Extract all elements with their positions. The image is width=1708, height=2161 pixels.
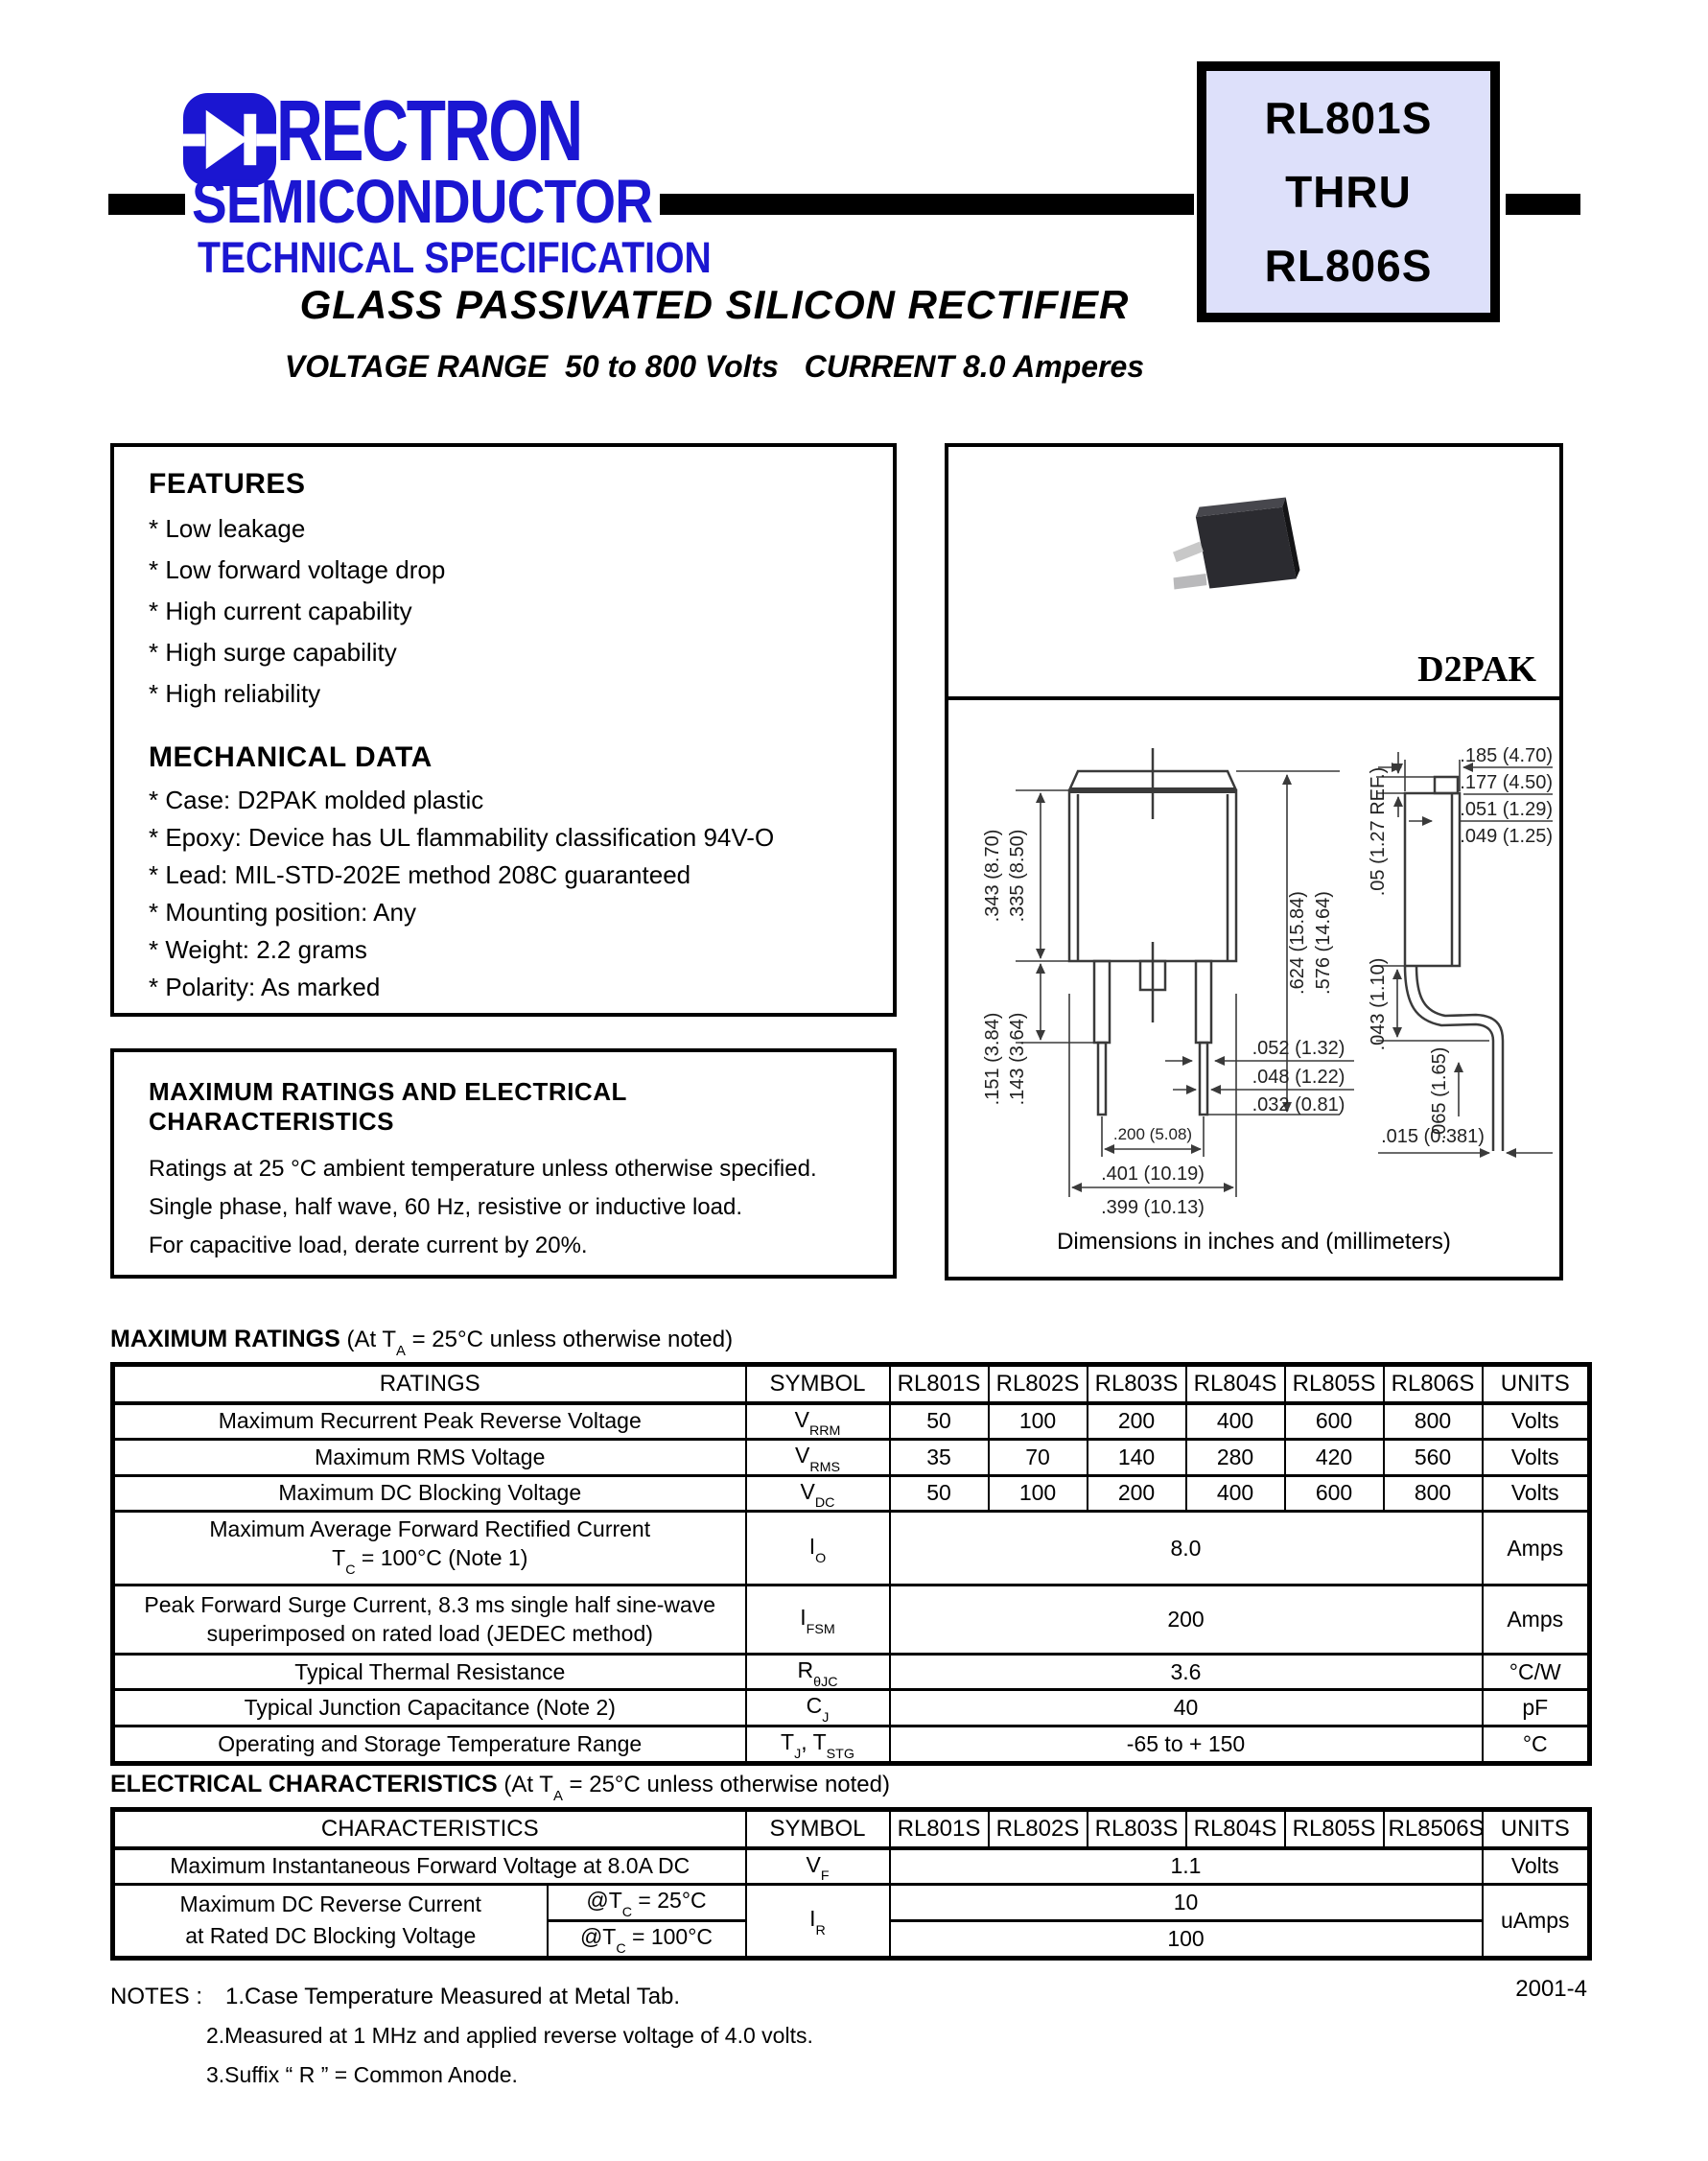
characteristic-symbol: IR [746,1885,890,1959]
rating-value: 100 [989,1403,1088,1440]
rating-value: 3.6 [890,1654,1483,1690]
column-header: RL803S [1088,1810,1186,1848]
dimension-drawing: .343 (8.70) .335 (8.50) .151 (3.84) .143… [956,702,1556,1220]
d2pak-photo [1148,478,1340,641]
characteristic-unit: uAmps [1483,1885,1590,1959]
dim-label: .151 (3.84) [982,1013,1003,1106]
mechanical-item: * Weight: 2.2 grams [149,931,876,969]
rating-value: 8.0 [890,1512,1483,1586]
mechanical-item: * Case: D2PAK molded plastic [149,782,876,819]
feature-item: * Low leakage [149,508,876,550]
column-header: RL802S [989,1365,1088,1403]
rating-unit: Volts [1483,1475,1590,1512]
characteristic-unit: Volts [1483,1848,1590,1885]
rating-value: 280 [1186,1440,1285,1476]
part-number-last: RL806S [1265,240,1433,292]
rating-value: 600 [1285,1403,1384,1440]
notes-section: NOTES :1.Case Temperature Measured at Me… [110,1978,813,2095]
electrical-label: ELECTRICAL CHARACTERISTICS (At TA = 25°C… [110,1771,890,1801]
table-row: Typical Junction Capacitance (Note 2) CJ… [113,1690,1590,1726]
note-item: 3.Suffix “ R ” = Common Anode. [206,2055,813,2095]
electrical-label-sub: A [553,1789,563,1804]
electrical-table: CHARACTERISTICS SYMBOL RL801S RL802S RL8… [110,1807,1592,1961]
rating-symbol: VDC [746,1475,890,1512]
rating-value: 50 [890,1475,989,1512]
rating-symbol: RθJC [746,1654,890,1690]
column-header: RL8506S [1384,1810,1483,1848]
divider-bar-right [1506,194,1580,215]
max-ratings-label-sub: A [396,1344,406,1359]
mechanical-item: * Epoxy: Device has UL flammability clas… [149,819,876,857]
dim-label: .049 (1.25) [1460,826,1553,847]
rating-value: 200 [1088,1475,1186,1512]
rating-value: 200 [890,1585,1483,1654]
rating-value: 100 [989,1475,1088,1512]
column-header: UNITS [1483,1365,1590,1403]
column-header: RL805S [1285,1810,1384,1848]
characteristic-name: Maximum Instantaneous Forward Voltage at… [113,1848,746,1885]
rating-value: 70 [989,1440,1088,1476]
characteristic-symbol: VF [746,1848,890,1885]
dim-label: .051 (1.29) [1460,799,1553,820]
rating-value: 600 [1285,1475,1384,1512]
dim-label: .052 (1.32) [1252,1038,1345,1059]
rating-value: 420 [1285,1440,1384,1476]
column-header: RL804S [1186,1365,1285,1403]
dim-label: .335 (8.50) [1007,830,1028,923]
max-ratings-label: MAXIMUM RATINGS (At TA = 25°C unless oth… [110,1326,733,1356]
rating-value: 35 [890,1440,989,1476]
ratings-condition-line: Single phase, half wave, 60 Hz, resistiv… [149,1188,876,1227]
test-condition: @TC = 25°C [548,1885,746,1921]
part-number-thru: THRU [1285,166,1412,218]
rating-name: Peak Forward Surge Current, 8.3 ms singl… [113,1585,746,1654]
characteristic-name: Maximum DC Reverse Current at Rated DC B… [113,1885,548,1959]
characteristic-value: 1.1 [890,1848,1483,1885]
dim-label: .624 (15.84) [1287,891,1308,995]
electrical-label-pre: (At T [503,1772,553,1797]
rating-name: Maximum Recurrent Peak Reverse Voltage [113,1403,746,1440]
rating-name: Maximum DC Blocking Voltage [113,1475,746,1512]
dim-label: .399 (10.13) [1101,1197,1205,1218]
features-box: FEATURES * Low leakage * Low forward vol… [110,443,897,1017]
column-header: RL801S [890,1810,989,1848]
rating-symbol: TJ, TSTG [746,1726,890,1764]
mechanical-item: * Polarity: As marked [149,969,876,1006]
column-header: CHARACTERISTICS [113,1810,746,1848]
rating-unit: °C [1483,1726,1590,1764]
table-row: Operating and Storage Temperature Range … [113,1726,1590,1764]
max-ratings-label-pre: (At T [346,1327,396,1352]
characteristic-value: 100 [890,1921,1483,1959]
feature-item: * Low forward voltage drop [149,550,876,591]
electrical-label-post: = 25°C unless otherwise noted) [563,1772,890,1797]
dim-label: .177 (4.50) [1460,772,1553,793]
rating-symbol: IFSM [746,1585,890,1654]
rating-unit: Volts [1483,1440,1590,1476]
max-ratings-table: RATINGS SYMBOL RL801S RL802S RL803S RL80… [110,1362,1592,1766]
package-box: D2PAK [945,443,1563,1280]
rating-name: Typical Junction Capacitance (Note 2) [113,1690,746,1726]
note-item: 2.Measured at 1 MHz and applied reverse … [206,2016,813,2055]
dimension-caption: Dimensions in inches and (millimeters) [948,1229,1559,1256]
rating-symbol: VRMS [746,1440,890,1476]
brand-line3: TECHNICAL SPECIFICATION [198,236,712,279]
column-header: RL805S [1285,1365,1384,1403]
rating-unit: °C/W [1483,1654,1590,1690]
divider-bar-left [108,194,185,215]
part-number-first: RL801S [1265,92,1433,144]
rating-value: 800 [1384,1475,1483,1512]
table-row: Maximum Average Forward Rectified Curren… [113,1512,1590,1586]
rating-symbol: VRRM [746,1403,890,1440]
dim-label: .143 (3.64) [1007,1013,1028,1106]
ratings-conditions-box: MAXIMUM RATINGS AND ELECTRICAL CHARACTER… [110,1048,897,1279]
ratings-condition-line: Ratings at 25 °C ambient temperature unl… [149,1150,876,1188]
characteristic-value: 10 [890,1885,1483,1921]
rating-unit: Amps [1483,1585,1590,1654]
rating-unit: Volts [1483,1403,1590,1440]
note-item: 1.Case Temperature Measured at Metal Tab… [225,1984,680,2009]
dim-label: .015 (0.381) [1381,1126,1485,1147]
table-header-row: CHARACTERISTICS SYMBOL RL801S RL802S RL8… [113,1810,1590,1848]
column-header: UNITS [1483,1810,1590,1848]
page-subtitle: VOLTAGE RANGE 50 to 800 Volts CURRENT 8.… [158,349,1271,385]
brand-name: RECTRON [276,88,581,175]
package-photo-section: D2PAK [948,447,1559,700]
feature-item: * High reliability [149,673,876,715]
dim-label: .401 (10.19) [1101,1163,1205,1185]
dim-label: .05 (1.27 REF.) [1368,767,1389,897]
column-header: SYMBOL [746,1810,890,1848]
rating-name: Maximum RMS Voltage [113,1440,746,1476]
mechanical-item: * Lead: MIL-STD-202E method 208C guarant… [149,857,876,894]
column-header: RATINGS [113,1365,746,1403]
column-header: RL802S [989,1810,1088,1848]
column-header: RL806S [1384,1365,1483,1403]
max-ratings-label-bold: MAXIMUM RATINGS [110,1326,340,1352]
table-row: Maximum DC Reverse Current at Rated DC B… [113,1885,1590,1921]
brand-line2: SEMICONDUCTOR [192,171,652,232]
dim-label: .185 (4.70) [1460,745,1553,766]
ratings-conditions-heading: MAXIMUM RATINGS AND ELECTRICAL CHARACTER… [149,1077,876,1137]
test-condition: @TC = 100°C [548,1921,746,1959]
rating-value: 400 [1186,1475,1285,1512]
max-ratings-label-post: = 25°C unless otherwise noted) [406,1327,733,1352]
table-row: Maximum DC Blocking Voltage VDC 50 100 2… [113,1475,1590,1512]
column-header: RL804S [1186,1810,1285,1848]
rating-value: 40 [890,1690,1483,1726]
document-number: 2001-4 [1458,1976,1587,2003]
rating-name: Typical Thermal Resistance [113,1654,746,1690]
table-row: Maximum Instantaneous Forward Voltage at… [113,1848,1590,1885]
features-heading: FEATURES [149,468,876,501]
electrical-label-bold: ELECTRICAL CHARACTERISTICS [110,1771,498,1797]
table-row: Maximum Recurrent Peak Reverse Voltage V… [113,1403,1590,1440]
column-header: RL803S [1088,1365,1186,1403]
dim-label: .048 (1.22) [1252,1067,1345,1088]
rating-value: 200 [1088,1403,1186,1440]
feature-item: * High surge capability [149,632,876,673]
rating-value: -65 to + 150 [890,1726,1483,1764]
package-name-label: D2PAK [1417,648,1536,691]
rating-symbol: IO [746,1512,890,1586]
rating-value: 50 [890,1403,989,1440]
dim-label: .043 (1.10) [1368,958,1389,1051]
rating-name: Maximum Average Forward Rectified Curren… [113,1512,746,1586]
rating-unit: pF [1483,1690,1590,1726]
column-header: SYMBOL [746,1365,890,1403]
dim-label: .200 (5.08) [1113,1125,1192,1143]
page-title: GLASS PASSIVATED SILICON RECTIFIER [158,282,1271,328]
feature-item: * High current capability [149,591,876,632]
table-row: Peak Forward Surge Current, 8.3 ms singl… [113,1585,1590,1654]
rating-unit: Amps [1483,1512,1590,1586]
dim-label: .343 (8.70) [982,830,1003,923]
rating-value: 800 [1384,1403,1483,1440]
table-row: Typical Thermal Resistance RθJC 3.6 °C/W [113,1654,1590,1690]
table-header-row: RATINGS SYMBOL RL801S RL802S RL803S RL80… [113,1365,1590,1403]
dim-label: .032 (0.81) [1252,1094,1345,1116]
rating-value: 140 [1088,1440,1186,1476]
table-row: Maximum RMS Voltage VRMS 35 70 140 280 4… [113,1440,1590,1476]
rating-symbol: CJ [746,1690,890,1726]
package-drawing-section: .343 (8.70) .335 (8.50) .151 (3.84) .143… [948,700,1559,1277]
rating-value: 400 [1186,1403,1285,1440]
mechanical-item: * Mounting position: Any [149,894,876,931]
datasheet-page: RECTRON SEMICONDUCTOR TECHNICAL SPECIFIC… [0,0,1708,2161]
divider-bar-middle [660,194,1194,215]
ratings-condition-line: For capacitive load, derate current by 2… [149,1227,876,1265]
mechanical-heading: MECHANICAL DATA [149,741,876,774]
dim-label: .576 (14.64) [1313,891,1334,995]
rating-value: 560 [1384,1440,1483,1476]
column-header: RL801S [890,1365,989,1403]
notes-label: NOTES : [110,1984,202,2009]
rating-name: Operating and Storage Temperature Range [113,1726,746,1764]
